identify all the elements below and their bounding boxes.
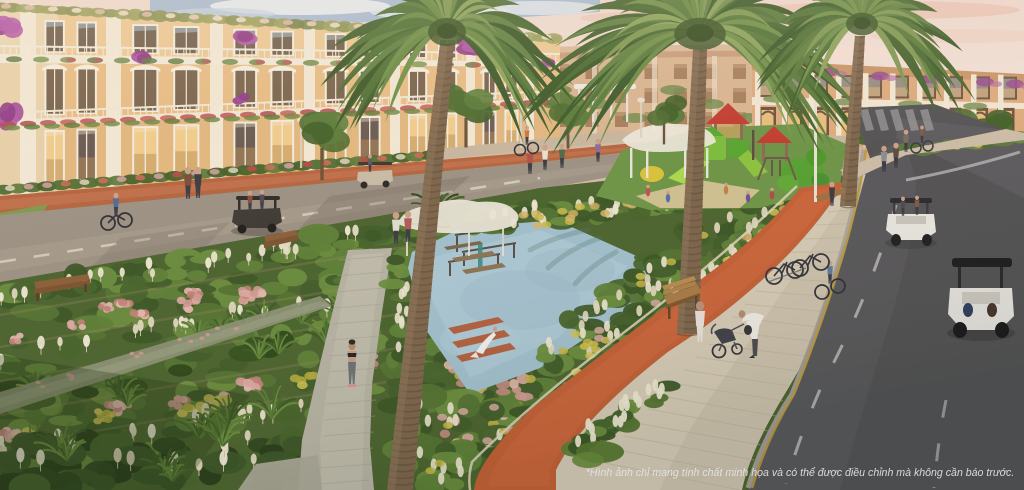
svg-text:*Hình ảnh chỉ mang tính chất m: *Hình ảnh chỉ mang tính chất minh họa và… [586, 467, 1014, 479]
